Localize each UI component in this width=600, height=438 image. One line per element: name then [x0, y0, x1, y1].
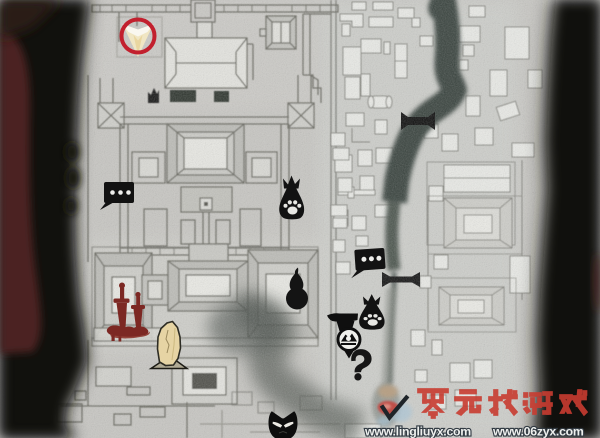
- svg-text:www.lingliuyx.com: www.lingliuyx.com: [364, 425, 471, 438]
- svg-text:www.06zyx.com: www.06zyx.com: [492, 425, 584, 438]
